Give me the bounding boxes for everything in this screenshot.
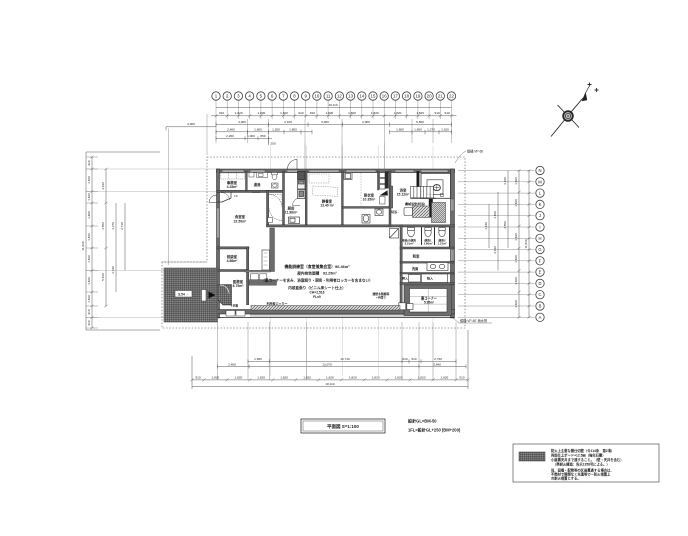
svg-text:4,550: 4,550 (503, 221, 507, 229)
svg-text:（畳コーナーを含み、浴室廻り・厨房・利用者ロッカーを含まない: （畳コーナーを含み、浴室廻り・厨房・利用者ロッカーを含まない） (261, 277, 372, 282)
svg-text:10,710: 10,710 (340, 357, 350, 361)
svg-text:17: 17 (393, 94, 398, 99)
svg-text:1,820: 1,820 (280, 111, 288, 115)
svg-text:1,820: 1,820 (395, 376, 403, 380)
svg-text:1,100: 1,100 (441, 128, 449, 132)
svg-text:2,400: 2,400 (227, 128, 235, 132)
svg-text:1,600: 1,600 (254, 128, 262, 132)
svg-text:910: 910 (87, 160, 91, 165)
svg-text:G: G (538, 247, 541, 252)
svg-text:1,820: 1,820 (87, 277, 91, 285)
svg-text:5.95m²: 5.95m² (424, 301, 434, 305)
svg-text:1,400: 1,400 (493, 211, 497, 219)
svg-text:の耐火措置とする。: の耐火措置とする。 (551, 476, 581, 481)
svg-text:4,370: 4,370 (111, 222, 115, 230)
svg-text:K: K (539, 202, 542, 207)
svg-text:1,820: 1,820 (87, 176, 91, 184)
svg-text:510: 510 (402, 357, 407, 361)
svg-text:2,730: 2,730 (120, 222, 124, 230)
svg-text:910: 910 (298, 111, 303, 115)
svg-text:2,000: 2,000 (362, 120, 370, 124)
svg-text:12: 12 (337, 94, 342, 99)
svg-text:13,070: 13,070 (322, 363, 332, 367)
svg-text:1,820: 1,820 (514, 177, 518, 185)
svg-text:1,200: 1,200 (272, 128, 280, 132)
svg-text:13: 13 (348, 94, 353, 99)
svg-text:4,550: 4,550 (101, 222, 105, 230)
svg-text:910: 910 (459, 376, 464, 380)
svg-text:910: 910 (87, 309, 91, 314)
svg-text:1,840: 1,840 (484, 222, 488, 230)
svg-text:11.96m²: 11.96m² (285, 211, 298, 215)
svg-text:4.86m²: 4.86m² (227, 259, 239, 263)
svg-text:16: 16 (382, 94, 387, 99)
svg-text:小屋裏天井まで達すること。（壁・天井を含む）: 小屋裏天井まで達すること。（壁・天井を含む） (550, 457, 624, 462)
svg-text:1,820: 1,820 (416, 111, 424, 115)
svg-text:11,830: 11,830 (524, 239, 528, 248)
svg-text:1,000: 1,000 (247, 134, 255, 138)
svg-text:和室: 和室 (412, 254, 420, 259)
svg-text:CH=2,516: CH=2,516 (310, 290, 325, 294)
svg-text:910: 910 (411, 357, 416, 361)
svg-text:10.35m²: 10.35m² (363, 198, 376, 202)
svg-text:1,820: 1,820 (235, 111, 243, 115)
svg-text:1,800: 1,800 (289, 128, 297, 132)
svg-text:18: 18 (404, 94, 409, 99)
svg-text:910: 910 (445, 111, 450, 115)
svg-text:11,830: 11,830 (81, 241, 85, 250)
svg-text:特浴→: 特浴→ (391, 210, 400, 214)
svg-text:利用者ロッカー: 利用者ロッカー (266, 301, 287, 306)
svg-text:設計GL=BM-50: 設計GL=BM-50 (408, 418, 437, 424)
svg-text:1,820: 1,820 (349, 376, 357, 380)
svg-text:湯沸: 湯沸 (254, 182, 261, 187)
svg-text:B: B (539, 304, 542, 309)
svg-text:910: 910 (310, 111, 315, 115)
svg-text:I: I (539, 225, 540, 230)
svg-text:S.54 →: S.54 → (178, 293, 189, 297)
svg-text:両面仕上ボード+12.5㎜（強化石膏）: 両面仕上ボード+12.5㎜（強化石膏） (551, 453, 606, 458)
svg-text:1,820: 1,820 (514, 233, 518, 241)
svg-text:F: F (539, 258, 542, 263)
svg-text:18,110: 18,110 (325, 382, 335, 386)
svg-text:910: 910 (87, 320, 91, 325)
svg-text:1.31m²: 1.31m² (438, 242, 447, 246)
svg-text:10: 10 (314, 94, 319, 99)
svg-text:H: H (538, 236, 541, 241)
svg-text:22: 22 (449, 94, 454, 99)
svg-text:19: 19 (415, 94, 420, 99)
svg-text:3,640: 3,640 (111, 266, 115, 274)
svg-text:1.66m²: 1.66m² (424, 242, 433, 246)
svg-text:3,100: 3,100 (284, 120, 292, 124)
svg-text:1,820: 1,820 (394, 111, 402, 115)
svg-text:20: 20 (427, 94, 432, 99)
svg-text:21: 21 (438, 94, 443, 99)
svg-text:15.12m²: 15.12m² (397, 193, 410, 197)
svg-text:3,640: 3,640 (101, 182, 105, 190)
svg-text:1FL=設計GL+250 (BM+200): 1FL=設計GL+250 (BM+200) (408, 427, 461, 433)
svg-text:1,820: 1,820 (87, 193, 91, 201)
svg-text:機能訓練室（食堂兼集会室）96.46m²: 機能訓練室（食堂兼集会室）96.46m² (283, 264, 350, 269)
svg-text:13.40 m²: 13.40 m² (320, 204, 334, 208)
svg-text:J: J (539, 213, 541, 218)
svg-text:4.8: 4.8 (234, 194, 238, 198)
svg-text:押入: 押入 (402, 276, 408, 281)
svg-text:14: 14 (359, 94, 364, 99)
svg-text:D: D (538, 281, 541, 286)
svg-text:3,190: 3,190 (503, 177, 507, 185)
svg-text:15: 15 (371, 94, 376, 99)
svg-text:1,270: 1,270 (427, 128, 435, 132)
svg-text:A: A (539, 315, 542, 320)
svg-text:機械浴室(特浴): 機械浴室(特浴) (405, 201, 425, 206)
svg-text:1,820: 1,820 (87, 211, 91, 219)
svg-text:食堂室: 食堂室 (235, 214, 246, 219)
svg-text:1,820: 1,820 (280, 376, 288, 380)
svg-text:1,820: 1,820 (212, 376, 220, 380)
svg-text:5,500: 5,500 (416, 120, 424, 124)
svg-text:1,820: 1,820 (87, 233, 91, 241)
svg-text:250: 250 (270, 141, 275, 145)
svg-text:洗面: 洗面 (412, 266, 419, 271)
svg-text:1,820: 1,820 (234, 376, 242, 380)
svg-text:1,820: 1,820 (303, 376, 311, 380)
svg-text:3,640: 3,640 (493, 246, 497, 254)
svg-text:5,460: 5,460 (101, 273, 105, 281)
svg-text:縦樋:VP-60: 縦樋:VP-60 (467, 149, 483, 154)
svg-text:4,000: 4,000 (238, 120, 246, 124)
svg-text:3.31m²: 3.31m² (405, 242, 414, 246)
svg-text:（準耐火構造：告示1358号による。）: （準耐火構造：告示1358号による。） (553, 462, 610, 467)
svg-text:4,000: 4,000 (187, 122, 195, 126)
svg-text:910: 910 (435, 111, 440, 115)
svg-text:1,820: 1,820 (514, 255, 518, 263)
svg-text:内装直張り（ビニル床シート仕上）: 内装直張り（ビニル床シート仕上） (288, 285, 346, 290)
svg-text:1,820: 1,820 (514, 199, 518, 207)
svg-text:4.25m²: 4.25m² (227, 185, 239, 189)
svg-text:+手摺り: +手摺り (376, 296, 386, 300)
svg-text:1,820: 1,820 (326, 376, 334, 380)
svg-text:N: N (538, 168, 541, 173)
svg-text:2,730: 2,730 (434, 357, 442, 361)
svg-text:1,820: 1,820 (348, 111, 356, 115)
svg-text:6.75m²: 6.75m² (233, 284, 245, 288)
svg-text:1,820: 1,820 (441, 376, 449, 380)
svg-text:910: 910 (219, 111, 224, 115)
svg-text:22.50m²: 22.50m² (234, 220, 247, 224)
svg-text:E: E (539, 270, 542, 275)
svg-text:縦樋:VP-60' 雨水桝: 縦樋:VP-60' 雨水桝 (460, 318, 488, 323)
svg-text:FL±0: FL±0 (313, 295, 321, 299)
svg-text:850: 850 (260, 134, 265, 138)
svg-text:1,820: 1,820 (258, 111, 266, 115)
svg-text:3,000: 3,000 (321, 120, 329, 124)
svg-text:物入: 物入 (427, 276, 433, 281)
svg-text:3,640: 3,640 (433, 363, 441, 367)
svg-text:1,820: 1,820 (326, 111, 334, 115)
svg-text:C: C (538, 292, 541, 297)
svg-text:1,820: 1,820 (371, 111, 379, 115)
svg-text:2,200: 2,200 (226, 134, 234, 138)
svg-text:1,820: 1,820 (418, 376, 426, 380)
svg-text:1,820: 1,820 (87, 295, 91, 303)
svg-text:平面図 S=1:100: 平面図 S=1:100 (327, 423, 359, 430)
svg-text:1,820: 1,820 (87, 255, 91, 263)
svg-text:屋内有効面積 92.25m²: 屋内有効面積 92.25m² (297, 271, 337, 276)
svg-text:11: 11 (326, 94, 331, 99)
svg-text:18,110: 18,110 (328, 103, 338, 107)
svg-text:M: M (538, 179, 542, 184)
svg-text:1,820: 1,820 (514, 277, 518, 285)
svg-text:1,820: 1,820 (372, 376, 380, 380)
svg-text:2,400: 2,400 (228, 363, 236, 367)
svg-text:1,820: 1,820 (257, 376, 265, 380)
svg-text:1,600: 1,600 (414, 128, 422, 132)
svg-text:1,820: 1,820 (514, 300, 518, 308)
svg-text:1,650: 1,650 (254, 357, 262, 361)
svg-text:1,600: 1,600 (396, 128, 404, 132)
svg-text:防火上主要な間仕切壁（令114条 第2項）: 防火上主要な間仕切壁（令114条 第2項） (551, 448, 614, 453)
svg-text:910: 910 (195, 376, 200, 380)
